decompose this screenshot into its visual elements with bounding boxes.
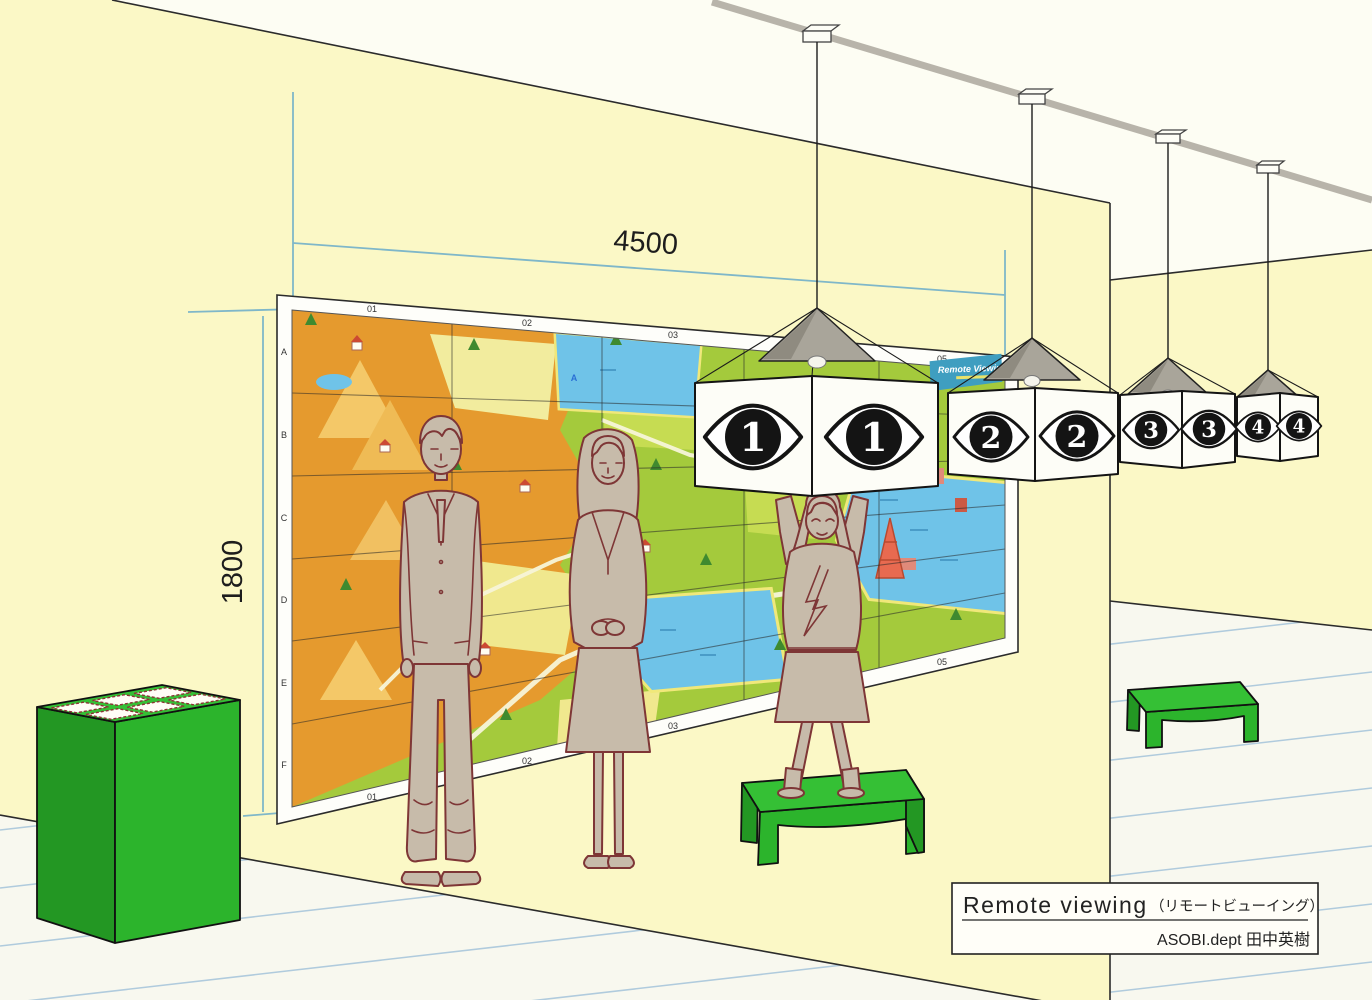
credit-text: ASOBI.dept 田中英樹: [1157, 931, 1310, 949]
pamphlet-cabinet: [37, 685, 240, 943]
row-label: E: [281, 678, 287, 688]
scene: 4500 1800: [0, 0, 1372, 1000]
col-label: 02: [522, 318, 532, 328]
width-dimension-label: 4500: [612, 225, 679, 262]
col-label: 01: [367, 792, 377, 802]
svg-text:1: 1: [739, 415, 766, 461]
row-label: C: [281, 513, 288, 523]
svg-text:1: 1: [860, 415, 887, 461]
col-label: 02: [522, 756, 532, 766]
row-label: A: [281, 347, 287, 357]
row-label: B: [281, 430, 287, 440]
title-block: Remote viewing （リモートビューイング） ASOBI.dept 田…: [952, 883, 1324, 954]
svg-text:4: 4: [1252, 418, 1265, 439]
svg-text:3: 3: [1143, 418, 1159, 444]
col-label: 01: [367, 304, 377, 314]
exhibition-design-sketch: 4500 1800: [0, 0, 1372, 1000]
height-dimension-label: 1800: [217, 540, 249, 605]
title-text: Remote viewing: [963, 892, 1148, 918]
col-label: 05: [937, 657, 947, 667]
map-grid-marker: A: [571, 373, 578, 383]
svg-text:2: 2: [1067, 420, 1088, 455]
row-label: D: [281, 595, 288, 605]
col-label: 03: [668, 721, 678, 731]
svg-text:2: 2: [981, 421, 1002, 456]
svg-text:4: 4: [1293, 417, 1306, 438]
title-jp-text: （リモートビューイング）: [1150, 898, 1324, 915]
row-label: F: [281, 760, 287, 770]
svg-text:3: 3: [1201, 417, 1217, 443]
col-label: 03: [668, 330, 678, 340]
